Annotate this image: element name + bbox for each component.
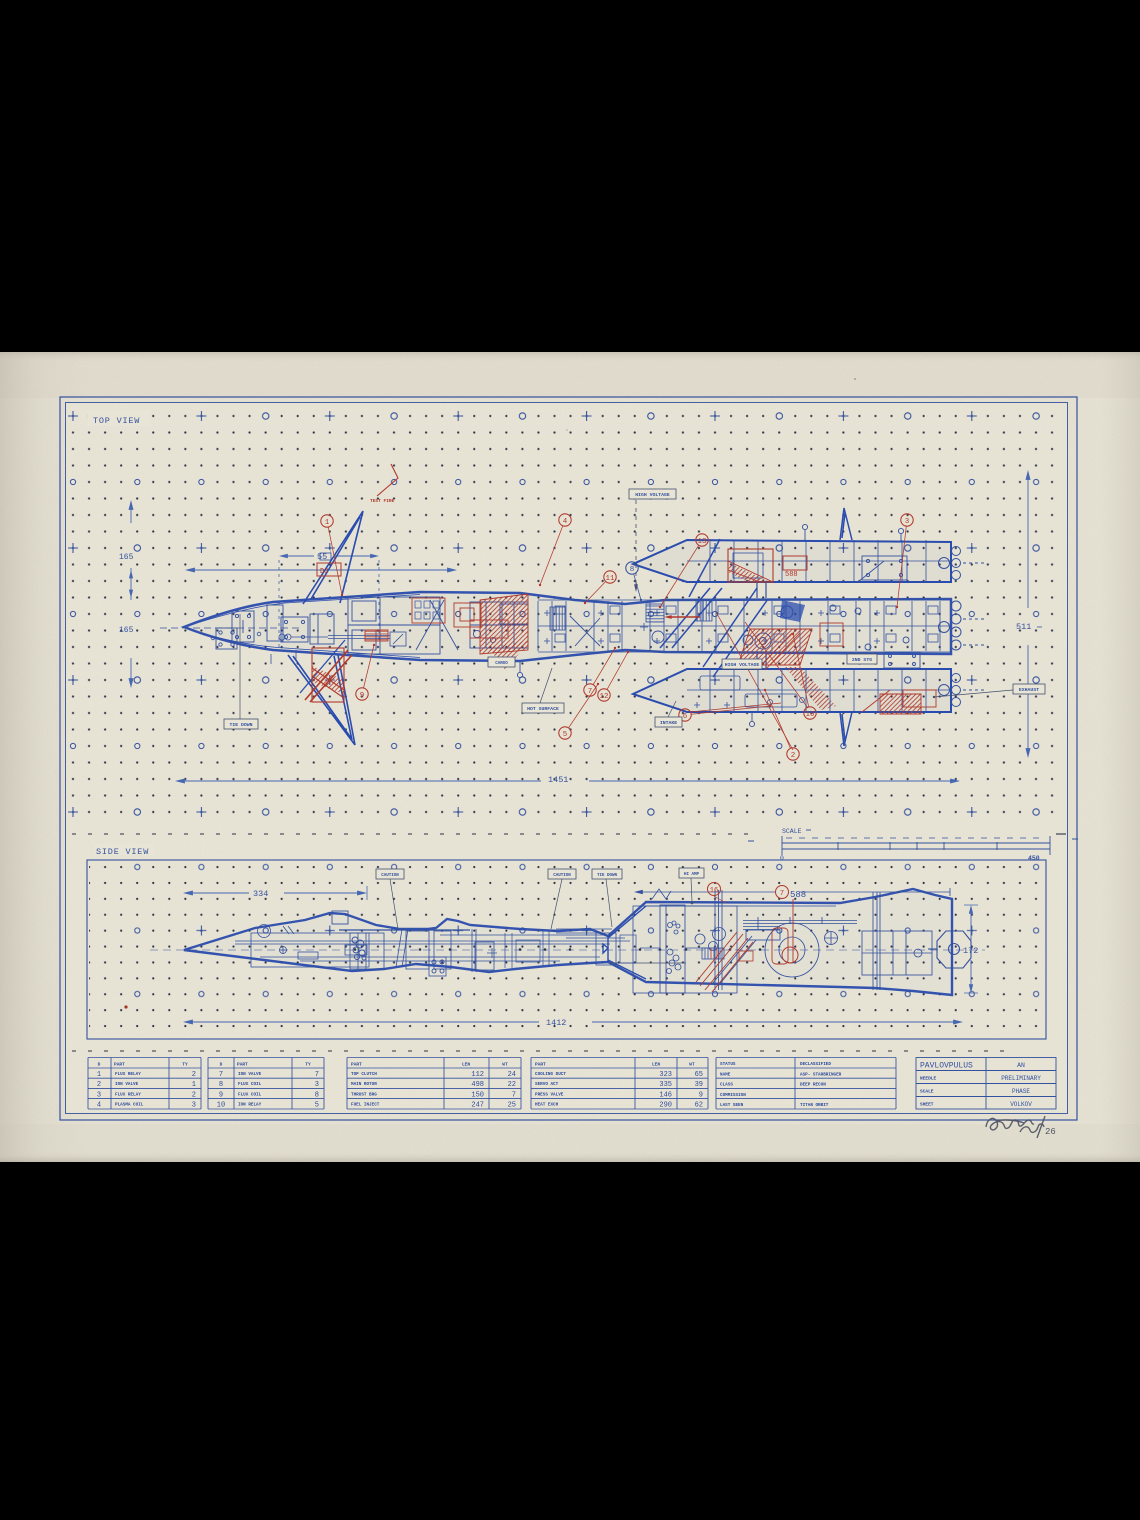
svg-text:6: 6 <box>683 713 688 721</box>
svg-text:THRUST BRG: THRUST BRG <box>351 1092 377 1097</box>
svg-text:25: 25 <box>508 1102 516 1110</box>
svg-text:SHEET: SHEET <box>920 1102 934 1108</box>
svg-text:ION RELAY: ION RELAY <box>238 1103 262 1108</box>
svg-text:1451: 1451 <box>548 775 568 785</box>
svg-text:CARGO: CARGO <box>495 662 508 666</box>
svg-text:7: 7 <box>219 1071 223 1079</box>
svg-text:FLUX COIL: FLUX COIL <box>238 1082 262 1087</box>
svg-text:450: 450 <box>1028 855 1040 862</box>
svg-text:165: 165 <box>119 553 134 562</box>
svg-text:7: 7 <box>780 890 784 898</box>
svg-text:D3: D3 <box>320 568 328 576</box>
svg-text:WT: WT <box>502 1062 508 1068</box>
svg-text:PHASE: PHASE <box>1012 1088 1030 1095</box>
svg-text:8: 8 <box>630 566 635 574</box>
svg-text:146: 146 <box>659 1091 672 1099</box>
svg-text:TIE DOWN: TIE DOWN <box>229 722 252 728</box>
svg-text:8: 8 <box>219 1081 223 1089</box>
svg-text:DEEP RECON: DEEP RECON <box>800 1083 826 1088</box>
svg-text:7: 7 <box>588 688 593 696</box>
svg-text:FLUX COIL: FLUX COIL <box>238 1092 262 1097</box>
svg-text:13: 13 <box>697 538 707 546</box>
svg-text:588: 588 <box>785 571 798 579</box>
svg-text:335: 335 <box>659 1081 672 1089</box>
svg-text:LEN: LEN <box>462 1062 470 1068</box>
svg-text:3: 3 <box>97 1091 101 1099</box>
svg-text:ASP- STARBRINGER: ASP- STARBRINGER <box>800 1073 842 1078</box>
svg-text:CAUTION: CAUTION <box>381 874 399 878</box>
svg-text:SCALE: SCALE <box>782 828 802 835</box>
svg-text:PAVLOVPULUS: PAVLOVPULUS <box>920 1062 973 1071</box>
svg-text:TOP CLUTCH: TOP CLUTCH <box>351 1072 377 1077</box>
svg-text:62: 62 <box>695 1102 703 1110</box>
svg-text:511: 511 <box>1016 622 1031 632</box>
svg-text:PRELIMINARY: PRELIMINARY <box>1001 1075 1041 1082</box>
svg-text:D: D <box>220 1062 223 1068</box>
svg-text:5: 5 <box>315 1102 319 1110</box>
svg-text:FLUX RELAY: FLUX RELAY <box>115 1072 141 1077</box>
svg-text:4: 4 <box>97 1102 101 1110</box>
svg-text:334: 334 <box>253 889 268 899</box>
svg-text:22: 22 <box>508 1081 516 1089</box>
svg-text:HI AMP: HI AMP <box>684 873 700 877</box>
svg-text:11: 11 <box>605 575 615 583</box>
svg-text:ION VALVE: ION VALVE <box>238 1072 262 1077</box>
svg-text:3: 3 <box>315 1081 319 1089</box>
svg-text:2ND STG: 2ND STG <box>852 657 872 663</box>
svg-text:SIDE VIEW: SIDE VIEW <box>96 847 149 857</box>
svg-text:D: D <box>98 1062 101 1068</box>
svg-text:39: 39 <box>695 1081 703 1089</box>
svg-text:1: 1 <box>325 519 330 527</box>
svg-text:1: 1 <box>97 1071 101 1079</box>
svg-text:CLASS: CLASS <box>720 1083 733 1088</box>
svg-text:CAUTION: CAUTION <box>553 874 571 878</box>
svg-text:65: 65 <box>695 1071 703 1079</box>
svg-text:1: 1 <box>192 1081 196 1089</box>
svg-text:TIE DOWN: TIE DOWN <box>597 874 618 878</box>
svg-text:NAME: NAME <box>720 1073 731 1078</box>
svg-text:HIGH VOLTAGE: HIGH VOLTAGE <box>635 492 670 498</box>
svg-text:PART: PART <box>237 1062 248 1068</box>
svg-text:55: 55 <box>317 552 327 562</box>
svg-text:16: 16 <box>710 887 718 895</box>
svg-text:PART: PART <box>114 1062 125 1068</box>
svg-text:165: 165 <box>119 626 134 635</box>
svg-text:LAST SEEN: LAST SEEN <box>720 1103 744 1108</box>
svg-text:VOLKOV: VOLKOV <box>1010 1101 1032 1108</box>
svg-text:MAIN ROTOR: MAIN ROTOR <box>351 1082 377 1087</box>
svg-text:3: 3 <box>192 1102 196 1110</box>
svg-text:FUEL INJECT: FUEL INJECT <box>351 1103 380 1108</box>
svg-text:SERVO ACT: SERVO ACT <box>535 1082 559 1087</box>
svg-text:DECLASSIFIED: DECLASSIFIED <box>800 1062 831 1067</box>
svg-text:2: 2 <box>97 1081 101 1089</box>
svg-text:TITAN ORBIT: TITAN ORBIT <box>800 1103 829 1108</box>
svg-text:3: 3 <box>905 518 910 526</box>
svg-text:7: 7 <box>512 1091 516 1099</box>
svg-text:AN: AN <box>1017 1062 1025 1069</box>
svg-text:TOP VIEW: TOP VIEW <box>93 416 140 426</box>
svg-text:588: 588 <box>790 890 806 900</box>
svg-text:172: 172 <box>963 946 978 956</box>
svg-text:9: 9 <box>699 1091 703 1099</box>
svg-text:290: 290 <box>659 1102 672 1110</box>
svg-text:12: 12 <box>599 693 608 701</box>
svg-text:PRESS VALVE: PRESS VALVE <box>535 1092 564 1097</box>
svg-text:9: 9 <box>219 1091 223 1099</box>
svg-text:PART: PART <box>351 1062 362 1068</box>
svg-text:8: 8 <box>315 1091 319 1099</box>
svg-text:24: 24 <box>508 1071 516 1079</box>
svg-text:HOT SURFACE: HOT SURFACE <box>527 706 559 712</box>
svg-text:INTAKE: INTAKE <box>660 720 677 726</box>
svg-text:2: 2 <box>192 1091 196 1099</box>
svg-text:150: 150 <box>471 1091 484 1099</box>
svg-text:ION VALVE: ION VALVE <box>115 1082 139 1087</box>
svg-text:COOLING DUCT: COOLING DUCT <box>535 1072 566 1077</box>
svg-text:498: 498 <box>471 1081 484 1089</box>
svg-text:STATUS: STATUS <box>720 1062 736 1067</box>
svg-text:TY: TY <box>305 1062 311 1068</box>
svg-text:9: 9 <box>360 692 365 700</box>
svg-text:TY: TY <box>182 1062 188 1068</box>
svg-text:2: 2 <box>791 752 796 760</box>
svg-text:LEN: LEN <box>652 1062 660 1068</box>
svg-text:5: 5 <box>563 731 568 739</box>
svg-text:26: 26 <box>1045 1127 1056 1137</box>
svg-text:112: 112 <box>471 1071 484 1079</box>
svg-text:WT: WT <box>689 1062 695 1068</box>
svg-text:10: 10 <box>805 711 815 719</box>
svg-text:TEST FIRE: TEST FIRE <box>370 498 395 504</box>
svg-text:7: 7 <box>315 1071 319 1079</box>
svg-text:10: 10 <box>217 1102 225 1110</box>
svg-text:2: 2 <box>192 1071 196 1079</box>
svg-text:0: 0 <box>780 855 784 862</box>
svg-text:SCALE: SCALE <box>920 1089 934 1095</box>
svg-text:PLASMA COIL: PLASMA COIL <box>115 1103 144 1108</box>
svg-text:HEAT EXCH: HEAT EXCH <box>535 1103 559 1108</box>
svg-text:EXHAUST: EXHAUST <box>1019 687 1039 693</box>
svg-text:PART: PART <box>535 1062 546 1068</box>
svg-text:HIGH VOLTAGE: HIGH VOLTAGE <box>725 662 760 668</box>
svg-text:FLUX RELAY: FLUX RELAY <box>115 1092 141 1097</box>
svg-text:1412: 1412 <box>546 1018 566 1028</box>
svg-text:323: 323 <box>659 1071 672 1079</box>
svg-text:COMMISSION: COMMISSION <box>720 1093 746 1098</box>
svg-text:247: 247 <box>471 1102 484 1110</box>
svg-text:NEEDLE: NEEDLE <box>920 1076 937 1082</box>
svg-text:4: 4 <box>563 518 568 526</box>
